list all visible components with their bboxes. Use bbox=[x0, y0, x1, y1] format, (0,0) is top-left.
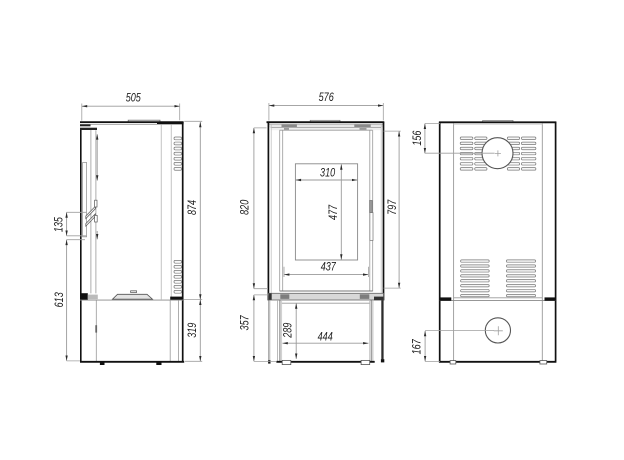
svg-text:477: 477 bbox=[328, 204, 340, 220]
svg-text:357: 357 bbox=[239, 314, 251, 330]
svg-text:135: 135 bbox=[54, 217, 66, 232]
svg-text:310: 310 bbox=[320, 167, 335, 179]
svg-text:319: 319 bbox=[187, 322, 199, 337]
svg-text:820: 820 bbox=[239, 200, 251, 215]
svg-text:444: 444 bbox=[318, 331, 333, 343]
svg-text:576: 576 bbox=[319, 92, 334, 104]
svg-text:156: 156 bbox=[412, 130, 424, 145]
svg-text:613: 613 bbox=[54, 292, 66, 307]
svg-text:797: 797 bbox=[387, 199, 399, 215]
svg-text:437: 437 bbox=[321, 262, 337, 274]
svg-text:289: 289 bbox=[282, 322, 294, 338]
svg-text:505: 505 bbox=[126, 93, 141, 105]
svg-text:167: 167 bbox=[412, 338, 424, 354]
svg-text:874: 874 bbox=[187, 200, 199, 215]
